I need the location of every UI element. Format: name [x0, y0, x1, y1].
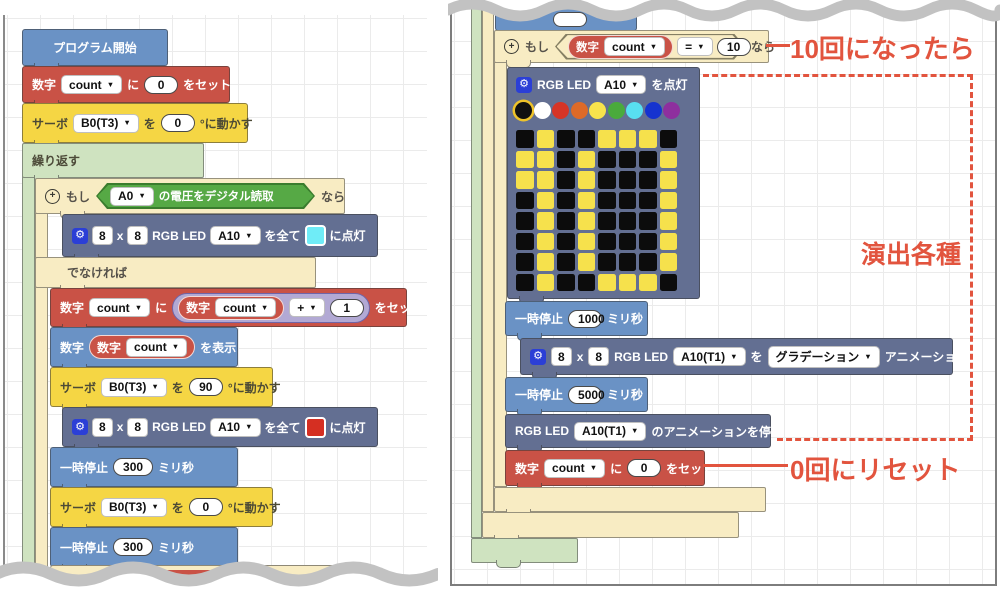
led-cell-3-6[interactable] — [639, 192, 657, 210]
chevron-down-icon: ▼ — [697, 43, 704, 51]
variable-capsule[interactable]: 数字count▼ — [178, 296, 284, 320]
led-cell-2-7[interactable] — [660, 171, 678, 189]
pause-kw: 一時停止 — [515, 386, 563, 403]
variable-name: count — [612, 40, 645, 54]
led-cell-1-2[interactable] — [557, 151, 575, 169]
repeat-left-column[interactable] — [22, 176, 35, 589]
block-servo-init[interactable]: サーボ B0(T3)▼ を 0 °に動かす — [22, 103, 248, 143]
comparator: = — [685, 40, 692, 54]
servo-kw: サーボ — [32, 115, 68, 132]
inner-if-bottom-bar[interactable] — [494, 487, 766, 512]
matrix-width-field[interactable]: 8 — [92, 418, 113, 437]
block-if-voltage-header[interactable]: + もし A0▼ の電圧をデジタル読取 なら — [35, 178, 345, 214]
led-name: RGB LED — [152, 229, 206, 243]
analog-port: A0 — [118, 189, 133, 203]
palette-color-8[interactable] — [663, 102, 680, 119]
led-port-dropdown[interactable]: A10(T1)▼ — [673, 347, 745, 366]
block-led-all-cyan[interactable]: ⚙ 8 x 8 RGB LED A10▼ を全て に点灯 — [62, 214, 378, 257]
block-led-matrix[interactable]: ⚙ RGB LED A10▼ を点灯 — [507, 67, 700, 299]
program-start-label: プログラム開始 — [53, 39, 137, 56]
led-cell-2-1[interactable] — [537, 171, 555, 189]
palette-color-0[interactable] — [515, 102, 532, 119]
block-display-count[interactable]: 数字 数字count▼ を表示 — [50, 327, 238, 367]
annotation-dash-top — [703, 74, 973, 77]
led-port: A10 — [604, 78, 626, 92]
chevron-down-icon: ▼ — [631, 81, 638, 89]
compare-value-field[interactable]: 10 — [717, 38, 751, 56]
else-kw: でなければ — [67, 264, 127, 281]
palette-color-4[interactable] — [589, 102, 606, 119]
led-cell-1-0[interactable] — [516, 151, 534, 169]
led-cell-1-4[interactable] — [598, 151, 616, 169]
annotation-dash-right — [970, 74, 973, 441]
block-servo-90[interactable]: サーボ B0(T3)▼ を 90 °に動かす — [50, 367, 273, 407]
block-set-count-0[interactable]: 数字 count▼ に 0 をセット — [22, 66, 230, 103]
led-cell-0-0[interactable] — [516, 130, 534, 148]
angle-field[interactable]: 90 — [189, 378, 223, 396]
gear-icon[interactable]: ⚙ — [530, 349, 546, 365]
variable-dropdown[interactable]: count▼ — [61, 75, 122, 94]
gear-icon[interactable]: ⚙ — [516, 77, 532, 93]
led-cell-3-4[interactable] — [598, 192, 616, 210]
led-cell-5-1[interactable] — [537, 233, 555, 251]
matrix-width-field[interactable]: 8 — [92, 226, 113, 245]
block-pause-1000[interactable]: 一時停止 1000 ミリ秒 — [505, 301, 648, 336]
set-action: をセット — [375, 299, 423, 316]
block-pause-300-a[interactable]: 一時停止 300 ミリ秒 — [50, 447, 238, 487]
chevron-down-icon: ▼ — [590, 464, 597, 472]
particle: を — [751, 348, 763, 365]
then-kw: なら — [321, 188, 345, 205]
led-cell-1-1[interactable] — [537, 151, 555, 169]
led-cell-5-7[interactable] — [660, 233, 678, 251]
analog-port-dropdown[interactable]: A0▼ — [110, 187, 154, 206]
led-cell-6-2[interactable] — [557, 253, 575, 271]
chevron-down-icon: ▼ — [245, 423, 252, 431]
led-cell-2-0[interactable] — [516, 171, 534, 189]
led-cell-6-3[interactable] — [578, 253, 596, 271]
pause-kw: 一時停止 — [60, 539, 108, 556]
servo-unit: °に動かす — [228, 379, 281, 396]
led-cell-7-5[interactable] — [619, 274, 637, 292]
palette-color-5[interactable] — [608, 102, 625, 119]
led-port-dropdown[interactable]: A10(T1)▼ — [574, 422, 646, 441]
led-cell-6-6[interactable] — [639, 253, 657, 271]
led-cell-2-2[interactable] — [557, 171, 575, 189]
annotation-effects: 演出各種 — [861, 235, 961, 271]
led-cell-6-1[interactable] — [537, 253, 555, 271]
palette-color-3[interactable] — [571, 102, 588, 119]
led-cell-0-3[interactable] — [578, 130, 596, 148]
animation-label: アニメーション — [885, 348, 969, 365]
if-kw: もし — [66, 188, 90, 205]
ms-unit: ミリ秒 — [607, 310, 643, 327]
annotation-reset-zero: 0回にリセット — [790, 450, 960, 487]
servo-port-dropdown[interactable]: B0(T3)▼ — [101, 378, 167, 397]
duration-field[interactable]: 300 — [113, 538, 153, 556]
servo-port: B0(T3) — [109, 500, 146, 514]
led-cell-0-7[interactable] — [660, 130, 678, 148]
led-cell-3-5[interactable] — [619, 192, 637, 210]
stop-label: のアニメーションを停止 — [651, 423, 783, 440]
lit-label: を点灯 — [651, 76, 687, 93]
block-pause-5000[interactable]: 一時停止 5000 ミリ秒 — [505, 377, 648, 412]
variable-name: count — [223, 301, 256, 315]
variable-dropdown[interactable]: count▼ — [215, 298, 276, 317]
color-swatch-red[interactable] — [305, 417, 326, 438]
led-cell-0-6[interactable] — [639, 130, 657, 148]
gear-icon[interactable]: ⚙ — [72, 228, 88, 244]
expand-plus-icon[interactable]: + — [45, 189, 60, 204]
led-cell-0-5[interactable] — [619, 130, 637, 148]
hidden-value-field — [553, 12, 587, 27]
annotation-when-ten: 10回になったら — [790, 29, 975, 66]
matrix-height-field[interactable]: 8 — [127, 226, 148, 245]
times-label: x — [117, 420, 124, 434]
led-cell-6-5[interactable] — [619, 253, 637, 271]
led-cell-3-3[interactable] — [578, 192, 596, 210]
num-kw: 数字 — [186, 299, 210, 316]
condition-digital-read[interactable]: A0▼ の電圧をデジタル読取 — [96, 183, 315, 209]
variable-capsule[interactable]: 数字count▼ — [89, 335, 195, 359]
variable-name: count — [69, 78, 102, 92]
annotation-dash-bottom — [777, 438, 973, 441]
chevron-down-icon: ▼ — [309, 304, 316, 312]
led-cell-2-5[interactable] — [619, 171, 637, 189]
servo-port-dropdown[interactable]: B0(T3)▼ — [101, 498, 167, 517]
if-kw: もし — [525, 38, 549, 55]
led-cell-4-2[interactable] — [557, 212, 575, 230]
block-program-start[interactable]: プログラム開始 — [22, 29, 168, 66]
matrix-height-field[interactable]: 8 — [588, 347, 609, 366]
led-cell-0-4[interactable] — [598, 130, 616, 148]
chevron-down-icon: ▼ — [261, 304, 268, 312]
led-cell-4-1[interactable] — [537, 212, 555, 230]
led-name: RGB LED — [614, 350, 668, 364]
ms-unit: ミリ秒 — [607, 386, 643, 403]
num-kw: 数字 — [576, 39, 599, 55]
lit-label: に点灯 — [330, 227, 366, 244]
operator: + — [297, 301, 304, 315]
lit-label: に点灯 — [330, 419, 366, 436]
led-cell-4-3[interactable] — [578, 212, 596, 230]
pause-kw: 一時停止 — [515, 310, 563, 327]
servo-kw: サーボ — [60, 499, 96, 516]
annotation-line-reset — [703, 464, 788, 467]
led-cell-4-5[interactable] — [619, 212, 637, 230]
block-reset-count[interactable]: 数字 count▼ に 0 をセット — [505, 450, 705, 486]
ms-unit: ミリ秒 — [158, 459, 194, 476]
led-grid — [516, 130, 677, 291]
repeat-label: 繰り返す — [32, 152, 80, 169]
palette-color-2[interactable] — [552, 102, 569, 119]
value-field[interactable]: 0 — [144, 76, 178, 94]
connector-tab — [496, 560, 521, 568]
annotation-line-when-ten — [766, 44, 790, 47]
animation-mode: グラデーション — [776, 348, 860, 365]
particle: に — [610, 460, 622, 477]
led-port: A10(T1) — [582, 424, 626, 438]
led-port-dropdown[interactable]: A10▼ — [596, 75, 646, 94]
led-cell-7-6[interactable] — [639, 274, 657, 292]
num-kw: 数字 — [97, 339, 121, 356]
chevron-down-icon: ▼ — [123, 119, 130, 127]
pause-kw: 一時停止 — [60, 459, 108, 476]
animation-mode-dropdown[interactable]: グラデーション▼ — [768, 346, 880, 368]
outer-if-left-column[interactable] — [482, 8, 494, 512]
led-cell-2-6[interactable] — [639, 171, 657, 189]
led-cell-3-0[interactable] — [516, 192, 534, 210]
servo-port: B0(T3) — [81, 116, 118, 130]
all-label: を全て — [265, 227, 301, 244]
times-label: x — [577, 350, 584, 364]
num-kw: 数字 — [60, 339, 84, 356]
led-cell-7-1[interactable] — [537, 274, 555, 292]
set-action: をセット — [666, 460, 714, 477]
display-action: を表示 — [200, 339, 236, 356]
condition-text: の電圧をデジタル読取 — [159, 188, 274, 204]
led-cell-5-3[interactable] — [578, 233, 596, 251]
chevron-down-icon: ▼ — [730, 353, 737, 361]
particle: に — [155, 299, 167, 316]
block-truncated-bottom[interactable] — [50, 565, 341, 587]
set-action: をセット — [183, 76, 231, 93]
repeat-bottom-bar[interactable] — [471, 538, 578, 563]
led-cell-6-7[interactable] — [660, 253, 678, 271]
chevron-down-icon: ▼ — [151, 383, 158, 391]
led-cell-6-0[interactable] — [516, 253, 534, 271]
led-port: A10 — [218, 229, 240, 243]
color-swatch-cyan[interactable] — [305, 225, 326, 246]
led-cell-5-0[interactable] — [516, 233, 534, 251]
duration-field[interactable]: 1000 — [568, 310, 602, 328]
chevron-down-icon: ▼ — [172, 343, 179, 351]
servo-port: B0(T3) — [109, 380, 146, 394]
matrix-width-field[interactable]: 8 — [551, 347, 572, 366]
block-else-bar[interactable]: でなければ — [35, 257, 316, 288]
led-cell-2-4[interactable] — [598, 171, 616, 189]
set-kw: 数字 — [60, 299, 84, 316]
chevron-down-icon: ▼ — [245, 232, 252, 240]
comparator-dropdown[interactable]: =▼ — [677, 37, 712, 56]
angle-field[interactable]: 0 — [189, 498, 223, 516]
servo-unit: °に動かす — [200, 115, 253, 132]
led-cell-1-6[interactable] — [639, 151, 657, 169]
chevron-down-icon: ▼ — [107, 81, 114, 89]
expression-plus-one[interactable]: 数字count▼ +▼ 1 — [172, 293, 370, 323]
led-cell-1-5[interactable] — [619, 151, 637, 169]
all-label: を全て — [265, 419, 301, 436]
led-cell-4-4[interactable] — [598, 212, 616, 230]
led-matrix-header: ⚙ RGB LED A10▼ を点灯 — [508, 68, 699, 94]
servo-unit: °に動かす — [228, 499, 281, 516]
operand-field[interactable]: 1 — [330, 299, 364, 317]
variable-dropdown[interactable]: count▼ — [544, 459, 605, 478]
led-cell-0-2[interactable] — [557, 130, 575, 148]
times-label: x — [117, 229, 124, 243]
particle: を — [172, 499, 184, 516]
led-port: A10 — [218, 420, 240, 434]
duration-field[interactable]: 5000 — [568, 386, 602, 404]
screenshot-page: プログラム開始 数字 count▼ に 0 をセット サーボ B0(T3)▼ を… — [0, 0, 1000, 589]
variable-name: count — [97, 301, 130, 315]
chevron-down-icon: ▼ — [151, 503, 158, 511]
variable-dropdown[interactable]: count▼ — [89, 298, 150, 317]
led-cell-6-4[interactable] — [598, 253, 616, 271]
chevron-down-icon: ▼ — [864, 353, 871, 361]
block-increment-count[interactable]: 数字 count▼ に 数字count▼ +▼ 1 をセット — [50, 288, 407, 327]
expand-plus-icon[interactable]: + — [504, 39, 519, 54]
duration-field[interactable]: 300 — [113, 458, 153, 476]
led-cell-3-1[interactable] — [537, 192, 555, 210]
block-if-count-header[interactable]: + もし 数字count▼ =▼ 10 なら — [494, 30, 769, 63]
chevron-down-icon: ▼ — [135, 304, 142, 312]
led-cell-7-7[interactable] — [660, 274, 678, 292]
set-kw: 数字 — [32, 76, 56, 93]
block-led-all-red[interactable]: ⚙ 8 x 8 RGB LED A10▼ を全て に点灯 — [62, 407, 378, 447]
block-servo-0[interactable]: サーボ B0(T3)▼ を 0 °に動かす — [50, 487, 273, 527]
particle: を — [144, 115, 156, 132]
condition-count-equals[interactable]: 数字count▼ =▼ 10 — [555, 34, 745, 60]
palette-color-1[interactable] — [534, 102, 551, 119]
block-led-animation[interactable]: ⚙ 8 x 8 RGB LED A10(T1)▼ を グラデーション▼ アニメー… — [520, 338, 953, 375]
matrix-height-field[interactable]: 8 — [127, 418, 148, 437]
particle: に — [127, 76, 139, 93]
led-cell-2-3[interactable] — [578, 171, 596, 189]
block-hidden-pause[interactable] — [495, 8, 637, 31]
palette-row — [508, 94, 699, 119]
value-field[interactable]: 0 — [627, 459, 661, 477]
led-cell-0-1[interactable] — [537, 130, 555, 148]
variable-capsule[interactable]: 数字count▼ — [568, 35, 673, 59]
ms-unit: ミリ秒 — [158, 539, 194, 556]
block-repeat-header[interactable]: 繰り返す — [22, 143, 204, 178]
led-port: A10(T1) — [681, 350, 725, 364]
variable-dropdown[interactable]: count▼ — [604, 37, 665, 56]
repeat-left-column-right[interactable] — [471, 8, 482, 538]
truncated-oval — [225, 569, 259, 583]
variable-name: count — [552, 461, 585, 475]
led-cell-5-2[interactable] — [557, 233, 575, 251]
led-name: RGB LED — [515, 424, 569, 438]
outer-if-bottom-bar[interactable] — [482, 512, 739, 538]
led-cell-7-2[interactable] — [557, 274, 575, 292]
gear-icon[interactable]: ⚙ — [72, 419, 88, 435]
led-cell-4-0[interactable] — [516, 212, 534, 230]
variable-dropdown[interactable]: count▼ — [126, 338, 187, 357]
led-cell-3-2[interactable] — [557, 192, 575, 210]
angle-field[interactable]: 0 — [161, 114, 195, 132]
led-cell-3-7[interactable] — [660, 192, 678, 210]
led-cell-7-0[interactable] — [516, 274, 534, 292]
led-cell-7-3[interactable] — [578, 274, 596, 292]
servo-port-dropdown[interactable]: B0(T3)▼ — [73, 114, 139, 133]
palette-color-6[interactable] — [626, 102, 643, 119]
particle: を — [172, 379, 184, 396]
palette-color-7[interactable] — [645, 102, 662, 119]
chevron-down-icon: ▼ — [650, 43, 657, 51]
led-cell-7-4[interactable] — [598, 274, 616, 292]
led-port-dropdown[interactable]: A10▼ — [210, 226, 260, 245]
variable-name: count — [134, 340, 167, 354]
truncated-red-element — [120, 570, 220, 582]
block-pause-300-b[interactable]: 一時停止 300 ミリ秒 — [50, 527, 238, 567]
led-cell-5-6[interactable] — [639, 233, 657, 251]
block-stop-animation[interactable]: RGB LED A10(T1)▼ のアニメーションを停止 — [505, 414, 771, 448]
led-cell-1-7[interactable] — [660, 151, 678, 169]
led-cell-4-7[interactable] — [660, 212, 678, 230]
led-cell-4-6[interactable] — [639, 212, 657, 230]
chevron-down-icon: ▼ — [631, 427, 638, 435]
chevron-down-icon: ▼ — [138, 192, 145, 200]
led-port-dropdown[interactable]: A10▼ — [210, 418, 260, 437]
led-cell-5-5[interactable] — [619, 233, 637, 251]
servo-kw: サーボ — [60, 379, 96, 396]
led-name: RGB LED — [152, 420, 206, 434]
led-cell-1-3[interactable] — [578, 151, 596, 169]
led-name: RGB LED — [537, 78, 591, 92]
led-cell-5-4[interactable] — [598, 233, 616, 251]
operator-dropdown[interactable]: +▼ — [289, 298, 324, 317]
set-kw: 数字 — [515, 460, 539, 477]
